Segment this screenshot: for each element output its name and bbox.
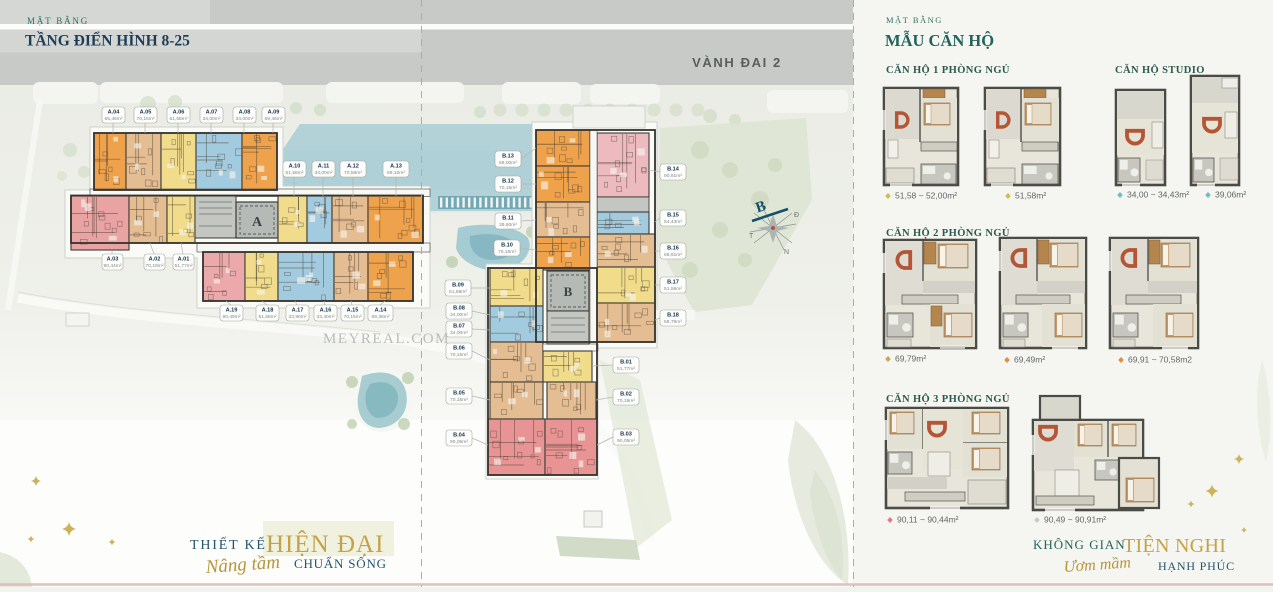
svg-text:B.15: B.15 bbox=[667, 213, 679, 219]
svg-text:B.13: B.13 bbox=[502, 154, 514, 160]
svg-text:90,49m²: 90,49m² bbox=[223, 314, 241, 320]
svg-text:A.08: A.08 bbox=[239, 110, 251, 116]
svg-text:CĂN HỘ STUDIO: CĂN HỘ STUDIO bbox=[1115, 63, 1205, 76]
svg-text:51,58m²: 51,58m² bbox=[259, 314, 277, 320]
svg-text:MẶT BẰNG: MẶT BẰNG bbox=[886, 15, 943, 25]
svg-text:CHUẨN SỐNG: CHUẨN SỐNG bbox=[294, 556, 387, 571]
svg-text:B.03: B.03 bbox=[620, 432, 632, 438]
svg-text:33,90m²: 33,90m² bbox=[289, 314, 307, 320]
svg-text:51,58m²: 51,58m² bbox=[286, 170, 304, 176]
svg-text:70,19m²: 70,19m² bbox=[617, 398, 635, 404]
svg-text:70,58m²: 70,58m² bbox=[344, 170, 362, 176]
svg-text:B.14: B.14 bbox=[667, 167, 680, 173]
svg-text:39,06m²: 39,06m² bbox=[1215, 190, 1246, 200]
svg-text:A.07: A.07 bbox=[206, 110, 218, 116]
svg-text:VÀNH ĐAI 2: VÀNH ĐAI 2 bbox=[692, 55, 782, 70]
svg-text:69,79m²: 69,79m² bbox=[895, 354, 926, 364]
svg-text:70,15m²: 70,15m² bbox=[498, 249, 516, 255]
svg-text:90,49 ~ 90,91m²: 90,49 ~ 90,91m² bbox=[1044, 515, 1106, 525]
svg-text:51,77m²: 51,77m² bbox=[175, 263, 193, 269]
svg-text:A.05: A.05 bbox=[140, 110, 152, 116]
svg-text:B.12: B.12 bbox=[502, 179, 514, 185]
svg-text:B.02: B.02 bbox=[620, 392, 632, 398]
svg-text:34,00m²: 34,00m² bbox=[450, 330, 468, 336]
svg-text:A.02: A.02 bbox=[149, 257, 161, 263]
svg-text:THIẾT KẾ: THIẾT KẾ bbox=[190, 536, 267, 553]
svg-text:MEYREAL.COM: MEYREAL.COM bbox=[323, 331, 450, 347]
svg-text:A.11: A.11 bbox=[318, 164, 330, 170]
svg-text:70,15m²: 70,15m² bbox=[499, 185, 517, 191]
svg-text:A.17: A.17 bbox=[292, 308, 304, 314]
svg-text:Đ: Đ bbox=[794, 212, 799, 219]
svg-text:B.04: B.04 bbox=[453, 433, 466, 439]
svg-text:68,79m²: 68,79m² bbox=[664, 319, 682, 325]
svg-text:A.13: A.13 bbox=[390, 164, 402, 170]
svg-text:69,00m²: 69,00m² bbox=[499, 160, 517, 166]
svg-text:90,05m²: 90,05m² bbox=[617, 438, 635, 444]
svg-text:A.09: A.09 bbox=[268, 110, 280, 116]
svg-text:T: T bbox=[749, 233, 754, 240]
svg-text:69,49m²: 69,49m² bbox=[1014, 355, 1045, 365]
svg-text:70,15m²: 70,15m² bbox=[450, 352, 468, 358]
svg-text:69,46m²: 69,46m² bbox=[265, 116, 283, 122]
svg-text:34,00m²: 34,00m² bbox=[450, 312, 468, 318]
svg-text:B.11: B.11 bbox=[502, 216, 514, 222]
svg-text:65,46m²: 65,46m² bbox=[105, 116, 123, 122]
svg-text:51,77m²: 51,77m² bbox=[617, 366, 635, 372]
svg-text:69,91 ~ 70,58m2: 69,91 ~ 70,58m2 bbox=[1128, 355, 1192, 365]
svg-text:51,58m²: 51,58m² bbox=[664, 286, 682, 292]
svg-text:CĂN HỘ 2 PHÒNG NGỦ: CĂN HỘ 2 PHÒNG NGỦ bbox=[886, 226, 1010, 239]
svg-text:B: B bbox=[564, 284, 573, 299]
svg-text:51,58 ~ 52,00m²: 51,58 ~ 52,00m² bbox=[895, 191, 957, 201]
svg-text:34,00m²: 34,00m² bbox=[315, 170, 333, 176]
svg-text:A.03: A.03 bbox=[107, 257, 119, 263]
svg-text:B.09: B.09 bbox=[452, 283, 464, 289]
svg-text:B.18: B.18 bbox=[667, 313, 679, 319]
svg-text:B.16: B.16 bbox=[667, 246, 679, 252]
svg-text:68,91m²: 68,91m² bbox=[664, 252, 682, 258]
svg-text:CĂN HỘ 1 PHÒNG NGỦ: CĂN HỘ 1 PHÒNG NGỦ bbox=[886, 63, 1010, 76]
svg-text:90,05m²: 90,05m² bbox=[450, 439, 468, 445]
svg-text:CĂN HỘ 3 PHÒNG NGỦ: CĂN HỘ 3 PHÒNG NGỦ bbox=[886, 392, 1010, 405]
svg-text:A.06: A.06 bbox=[173, 110, 185, 116]
svg-text:33,40m²: 33,40m² bbox=[317, 314, 335, 320]
svg-text:A.15: A.15 bbox=[347, 308, 359, 314]
svg-text:MẪU CĂN HỘ: MẪU CĂN HỘ bbox=[885, 31, 994, 50]
svg-text:34,00m²: 34,00m² bbox=[203, 116, 221, 122]
svg-text:A.10: A.10 bbox=[289, 164, 301, 170]
svg-text:A.18: A.18 bbox=[262, 308, 274, 314]
svg-text:N: N bbox=[784, 249, 789, 256]
svg-text:90,44m²: 90,44m² bbox=[104, 263, 122, 269]
svg-text:A.16: A.16 bbox=[320, 308, 332, 314]
svg-text:34,00m²: 34,00m² bbox=[236, 116, 254, 122]
svg-text:B.17: B.17 bbox=[667, 280, 679, 286]
svg-text:69,10m²: 69,10m² bbox=[387, 170, 405, 176]
svg-text:TẦNG ĐIỂN HÌNH 8-25: TẦNG ĐIỂN HÌNH 8-25 bbox=[25, 32, 190, 50]
svg-text:A.12: A.12 bbox=[347, 164, 359, 170]
svg-text:B.06: B.06 bbox=[453, 346, 465, 352]
svg-text:B.05: B.05 bbox=[453, 391, 465, 397]
svg-text:69,38m²: 69,38m² bbox=[372, 314, 390, 320]
svg-text:HẠNH PHÚC: HẠNH PHÚC bbox=[1158, 559, 1235, 573]
svg-text:A: A bbox=[252, 215, 263, 230]
svg-text:90,91m²: 90,91m² bbox=[664, 173, 682, 179]
svg-text:70,15m²: 70,15m² bbox=[450, 397, 468, 403]
svg-text:51,58m²: 51,58m² bbox=[1015, 191, 1046, 201]
svg-text:A.04: A.04 bbox=[108, 110, 121, 116]
svg-text:34,00 ~ 34,43m²: 34,00 ~ 34,43m² bbox=[1127, 190, 1189, 200]
svg-text:B.08: B.08 bbox=[453, 306, 465, 312]
svg-text:KHÔNG GIAN: KHÔNG GIAN bbox=[1033, 537, 1126, 552]
svg-text:B.10: B.10 bbox=[501, 243, 513, 249]
svg-text:70,19m²: 70,19m² bbox=[146, 263, 164, 269]
svg-text:39,60m²: 39,60m² bbox=[499, 222, 517, 228]
svg-text:54,43m²: 54,43m² bbox=[664, 219, 682, 225]
svg-text:MẶT BẰNG: MẶT BẰNG bbox=[27, 16, 89, 26]
svg-text:A.01: A.01 bbox=[178, 257, 190, 263]
svg-text:A.19: A.19 bbox=[226, 308, 238, 314]
svg-text:B.07: B.07 bbox=[453, 324, 465, 330]
svg-text:B.01: B.01 bbox=[620, 360, 632, 366]
svg-text:70,15m²: 70,15m² bbox=[137, 116, 155, 122]
svg-text:51,58m²: 51,58m² bbox=[449, 289, 467, 295]
svg-text:90,11 ~ 90,44m²: 90,11 ~ 90,44m² bbox=[897, 515, 959, 525]
svg-text:70,15m²: 70,15m² bbox=[344, 314, 362, 320]
svg-text:A.14: A.14 bbox=[375, 308, 388, 314]
svg-text:51,58m²: 51,58m² bbox=[170, 116, 188, 122]
svg-text:TIỆN NGHI: TIỆN NGHI bbox=[1123, 534, 1226, 557]
svg-text:HIỆN ĐẠI: HIỆN ĐẠI bbox=[266, 530, 384, 558]
